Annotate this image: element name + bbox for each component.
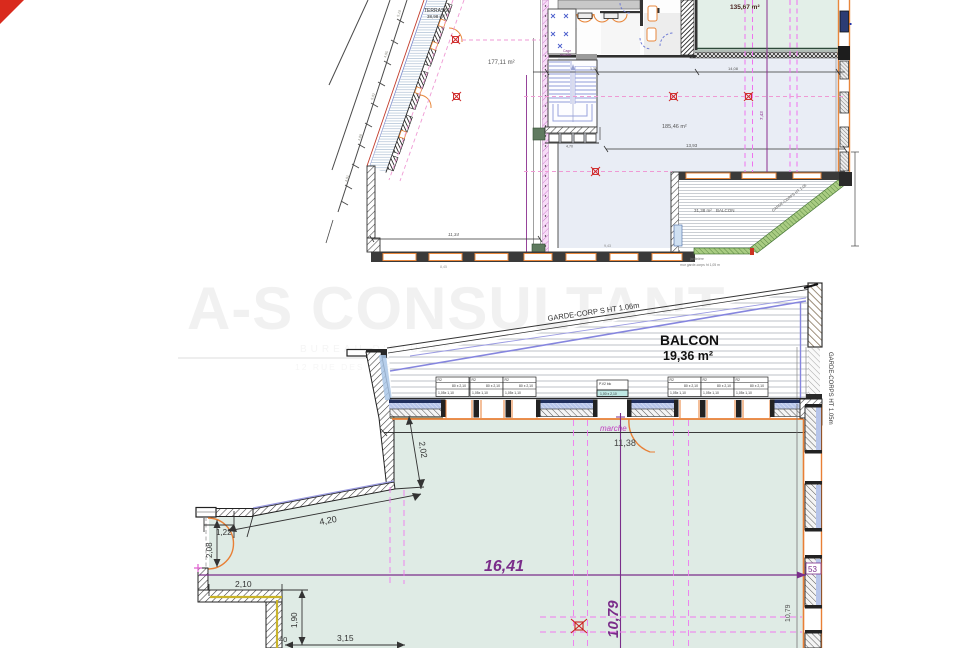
svg-text:BALCON: BALCON (660, 333, 719, 348)
svg-text:GARDE-CORPS HT 1.05m: GARDE-CORPS HT 1.05m (827, 352, 833, 425)
svg-text:4,70: 4,70 (566, 145, 573, 149)
svg-text:9,43: 9,43 (604, 244, 611, 248)
svg-text:8,45: 8,45 (440, 265, 447, 269)
svg-text:80 x 2,10: 80 x 2,10 (717, 384, 731, 388)
svg-text:53: 53 (808, 565, 817, 574)
svg-text:R2: R2 (736, 378, 740, 382)
svg-text:80 x 2,10: 80 x 2,10 (519, 384, 533, 388)
svg-text:R2: R2 (438, 378, 442, 382)
svg-text:40: 40 (279, 635, 287, 644)
svg-text:2,10: 2,10 (235, 579, 252, 589)
svg-text:185,46 m²: 185,46 m² (662, 124, 687, 130)
svg-text:31,38 m²: 31,38 m² (694, 208, 712, 213)
svg-text:14,08: 14,08 (728, 66, 739, 71)
svg-text:177,11 m²: 177,11 m² (488, 60, 515, 66)
svg-text:1,22: 1,22 (216, 528, 232, 537)
svg-text:19,36 m²: 19,36 m² (663, 349, 713, 363)
svg-text:marche: marche (600, 424, 627, 433)
svg-text:mur garde-corps ht 1,05 m: mur garde-corps ht 1,05 m (680, 263, 720, 267)
svg-text:escalier: escalier (560, 53, 573, 57)
svg-text:R2: R2 (670, 378, 674, 382)
svg-text:1,05x 1,10: 1,05x 1,10 (736, 391, 752, 395)
svg-text:11,38: 11,38 (614, 438, 636, 448)
svg-text:1,05x 1,10: 1,05x 1,10 (703, 391, 719, 395)
svg-text:1,05x 1,10: 1,05x 1,10 (670, 391, 686, 395)
svg-text:16,41: 16,41 (484, 558, 524, 575)
svg-text:1,05x 1,10: 1,05x 1,10 (505, 391, 521, 395)
svg-text:1,05x 1,10: 1,05x 1,10 (438, 391, 454, 395)
svg-text:1,35: 1,35 (590, 67, 597, 71)
svg-text:1,00 x 2,10: 1,00 x 2,10 (600, 392, 617, 396)
svg-text:P.V2 blc: P.V2 blc (599, 382, 611, 386)
svg-text:80 x 2,10: 80 x 2,10 (452, 384, 466, 388)
svg-text:38,98 m²: 38,98 m² (427, 14, 445, 19)
svg-text:80 x 2,10: 80 x 2,10 (684, 384, 698, 388)
svg-text:7,43: 7,43 (759, 111, 764, 120)
svg-text:BALCON: BALCON (716, 208, 735, 213)
svg-text:2,08: 2,08 (205, 542, 214, 558)
svg-text:R2: R2 (505, 378, 509, 382)
svg-text:13,93: 13,93 (686, 143, 698, 148)
svg-text:80 x 2,10: 80 x 2,10 (486, 384, 500, 388)
svg-text:R2: R2 (703, 378, 707, 382)
svg-text:R2: R2 (472, 378, 476, 382)
svg-text:1,05x 1,10: 1,05x 1,10 (472, 391, 488, 395)
svg-text:80 x 2,10: 80 x 2,10 (750, 384, 764, 388)
svg-text:3,15: 3,15 (337, 633, 354, 643)
svg-text:11,34: 11,34 (448, 232, 459, 237)
svg-text:10,79: 10,79 (785, 604, 792, 622)
svg-text:1,90: 1,90 (290, 612, 299, 628)
svg-text:jardinière: jardinière (689, 257, 704, 261)
